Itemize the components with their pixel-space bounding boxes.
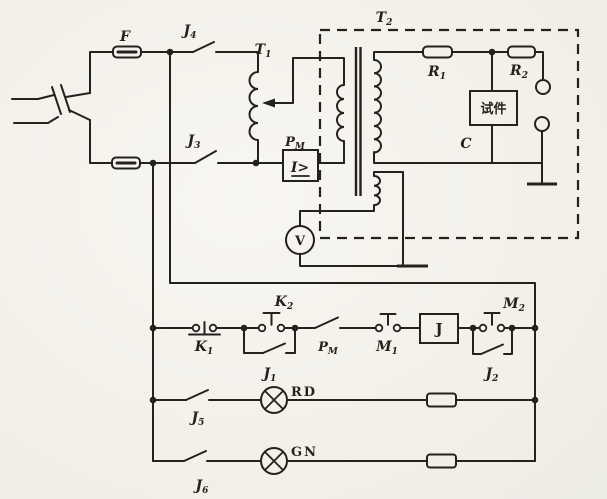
pushbutton-k2-icon bbox=[259, 313, 285, 331]
pushbutton-k1-icon bbox=[189, 322, 220, 335]
contact-j1-label: J1 bbox=[261, 366, 277, 384]
lamp-resistor-rd-icon bbox=[427, 394, 456, 407]
contact-pm-label: PM bbox=[317, 340, 339, 357]
lamp-rd-label: RD bbox=[291, 385, 317, 400]
resistor-r2-label: R2 bbox=[509, 63, 528, 81]
transformer-t2-measuring-winding bbox=[374, 176, 380, 205]
switch-j6-label: J6 bbox=[193, 478, 210, 496]
relay-coil-letter: J bbox=[433, 320, 442, 338]
pushbutton-m1-icon bbox=[376, 314, 401, 331]
switch-j5-icon bbox=[186, 390, 208, 400]
transformer-t2-secondary-winding bbox=[374, 60, 381, 152]
lamp-gn-icon bbox=[261, 448, 287, 474]
contact-pm-icon bbox=[315, 318, 338, 329]
switch-j6-icon bbox=[184, 451, 206, 461]
transformer-t2-label: T2 bbox=[376, 10, 393, 28]
t2-enclosure-boundary bbox=[320, 30, 578, 238]
specimen-label: 试件 bbox=[480, 101, 506, 116]
overcurrent-relay-label: PM bbox=[284, 135, 306, 152]
voltmeter-letter: V bbox=[294, 234, 306, 249]
overcurrent-symbol: I> bbox=[290, 160, 309, 176]
switch-j4-label: J4 bbox=[181, 23, 197, 41]
switch-j4-icon bbox=[193, 42, 214, 52]
power-plug-icon bbox=[12, 85, 90, 123]
switch-j5-label: J5 bbox=[189, 410, 205, 428]
specimen-box: 试件 bbox=[470, 91, 517, 125]
tap-arrow-icon bbox=[262, 99, 275, 108]
resistor-r2-icon bbox=[508, 47, 535, 58]
resistor-r1-label: R1 bbox=[427, 64, 446, 82]
transformer-t2-primary-winding bbox=[337, 85, 344, 141]
resistor-r1-icon bbox=[423, 47, 452, 58]
pushbutton-m2-label: M2 bbox=[502, 296, 525, 314]
switch-j3-icon bbox=[195, 151, 216, 163]
capacitance-label: C bbox=[460, 136, 471, 152]
schematic-canvas: I> 试件 V bbox=[0, 0, 607, 499]
relay-coil-box: J bbox=[420, 314, 458, 343]
regulator-t1-winding bbox=[250, 72, 276, 140]
contact-j1-icon bbox=[263, 344, 285, 354]
fuse-neutral-icon bbox=[112, 158, 140, 169]
regulator-t1-label: T1 bbox=[255, 42, 272, 60]
switch-j3-label: J3 bbox=[185, 133, 201, 151]
pushbutton-k2-label: K2 bbox=[274, 294, 293, 312]
transformer-t2-core bbox=[356, 47, 361, 196]
voltmeter-icon: V bbox=[286, 226, 314, 254]
lamp-rd-icon bbox=[261, 387, 287, 413]
contact-j2-icon bbox=[481, 345, 503, 355]
lamp-gn-label: GN bbox=[291, 445, 318, 460]
sphere-gap-icon bbox=[535, 80, 550, 131]
contact-j2-label: J2 bbox=[483, 366, 499, 384]
pushbutton-m1-label: M1 bbox=[375, 339, 398, 357]
lamp-resistor-gn-icon bbox=[427, 455, 456, 468]
pushbutton-k1-label: K1 bbox=[194, 339, 213, 357]
fuse-f-label: F bbox=[119, 29, 131, 45]
fuse-f-icon bbox=[113, 47, 141, 58]
circuit-diagram: I> 试件 V bbox=[0, 0, 607, 499]
pushbutton-m2-icon bbox=[480, 313, 505, 331]
overcurrent-relay-box: I> bbox=[283, 150, 318, 181]
